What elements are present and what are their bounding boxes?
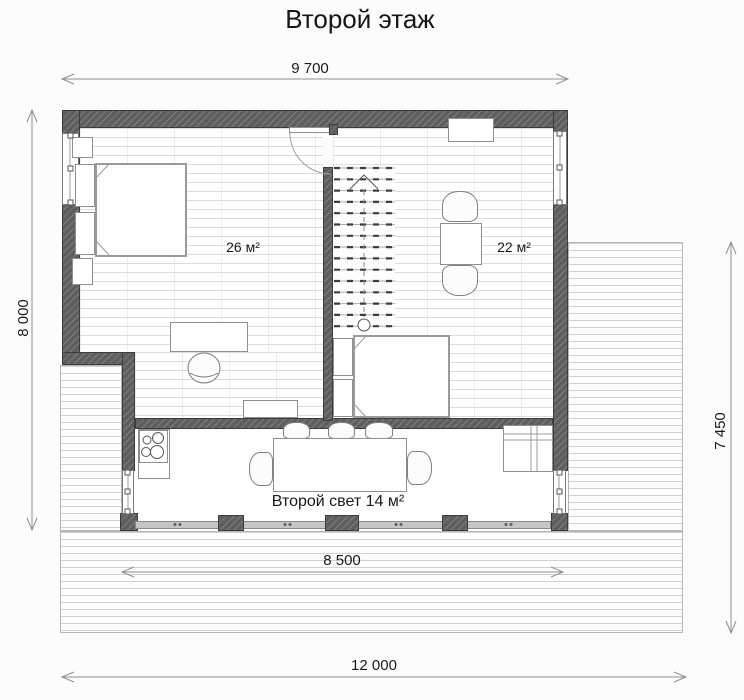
- door-hinge: [329, 124, 338, 135]
- cabinet-bottom-right: [503, 425, 553, 472]
- rail-post-2: [325, 515, 359, 531]
- deck-left: [60, 365, 122, 531]
- desk: [170, 322, 248, 352]
- wall-stairwell: [323, 167, 333, 421]
- nightstand-2a: [333, 338, 353, 376]
- floor-plan: Второй этаж: [0, 0, 744, 700]
- dining-chair-top-3: [365, 422, 393, 439]
- chair-right-bottom: [442, 265, 478, 296]
- baluster-icon: [393, 522, 404, 527]
- bed-2: [353, 335, 450, 418]
- dimension-inner-bottom-label: 8 500: [292, 552, 392, 569]
- dimension-top-label: 9 700: [260, 60, 360, 77]
- wall-left-lower: [122, 352, 135, 471]
- window-right: [553, 131, 567, 205]
- dining-chair-left: [249, 452, 273, 486]
- room-area-label-bedroom: 26 м²: [198, 239, 288, 255]
- nightstand-2b: [333, 379, 353, 417]
- dining-chair-right: [407, 451, 432, 485]
- dining-table: [273, 438, 407, 492]
- door-leaf: [289, 127, 330, 133]
- window-bottom-right: [553, 470, 566, 514]
- window-bottom-left: [122, 470, 134, 514]
- dining-chair-top-1: [283, 422, 310, 439]
- baluster-icon: [282, 522, 293, 527]
- rail-post-1: [218, 515, 244, 531]
- second-light-label: Второй свет 14 м²: [238, 493, 438, 511]
- nightstand-1b: [75, 212, 95, 255]
- post-bottom-right: [551, 513, 568, 531]
- room-area-label-right: 22 м²: [469, 239, 559, 255]
- stove: [139, 430, 168, 463]
- rail-post-3: [442, 515, 468, 531]
- bed-1: [95, 163, 187, 257]
- plan-title: Второй этаж: [0, 4, 720, 35]
- deck-bottom: [60, 531, 683, 633]
- dimension-outer-bottom-label: 12 000: [324, 657, 424, 674]
- chair-right-top: [442, 191, 478, 222]
- nightstand-1a: [75, 164, 95, 207]
- shelf-2: [72, 258, 93, 285]
- shelf-1: [72, 137, 93, 158]
- dining-chair-top-2: [328, 422, 355, 439]
- wardrobe-niche: [448, 118, 494, 142]
- dimension-right-label: 7 450: [712, 396, 732, 466]
- deck-right: [568, 242, 683, 531]
- dresser: [243, 400, 298, 418]
- baluster-icon: [172, 522, 183, 527]
- stairwell-floor: [333, 167, 395, 337]
- dimension-left-label: 8 000: [15, 283, 35, 353]
- baluster-icon: [503, 522, 514, 527]
